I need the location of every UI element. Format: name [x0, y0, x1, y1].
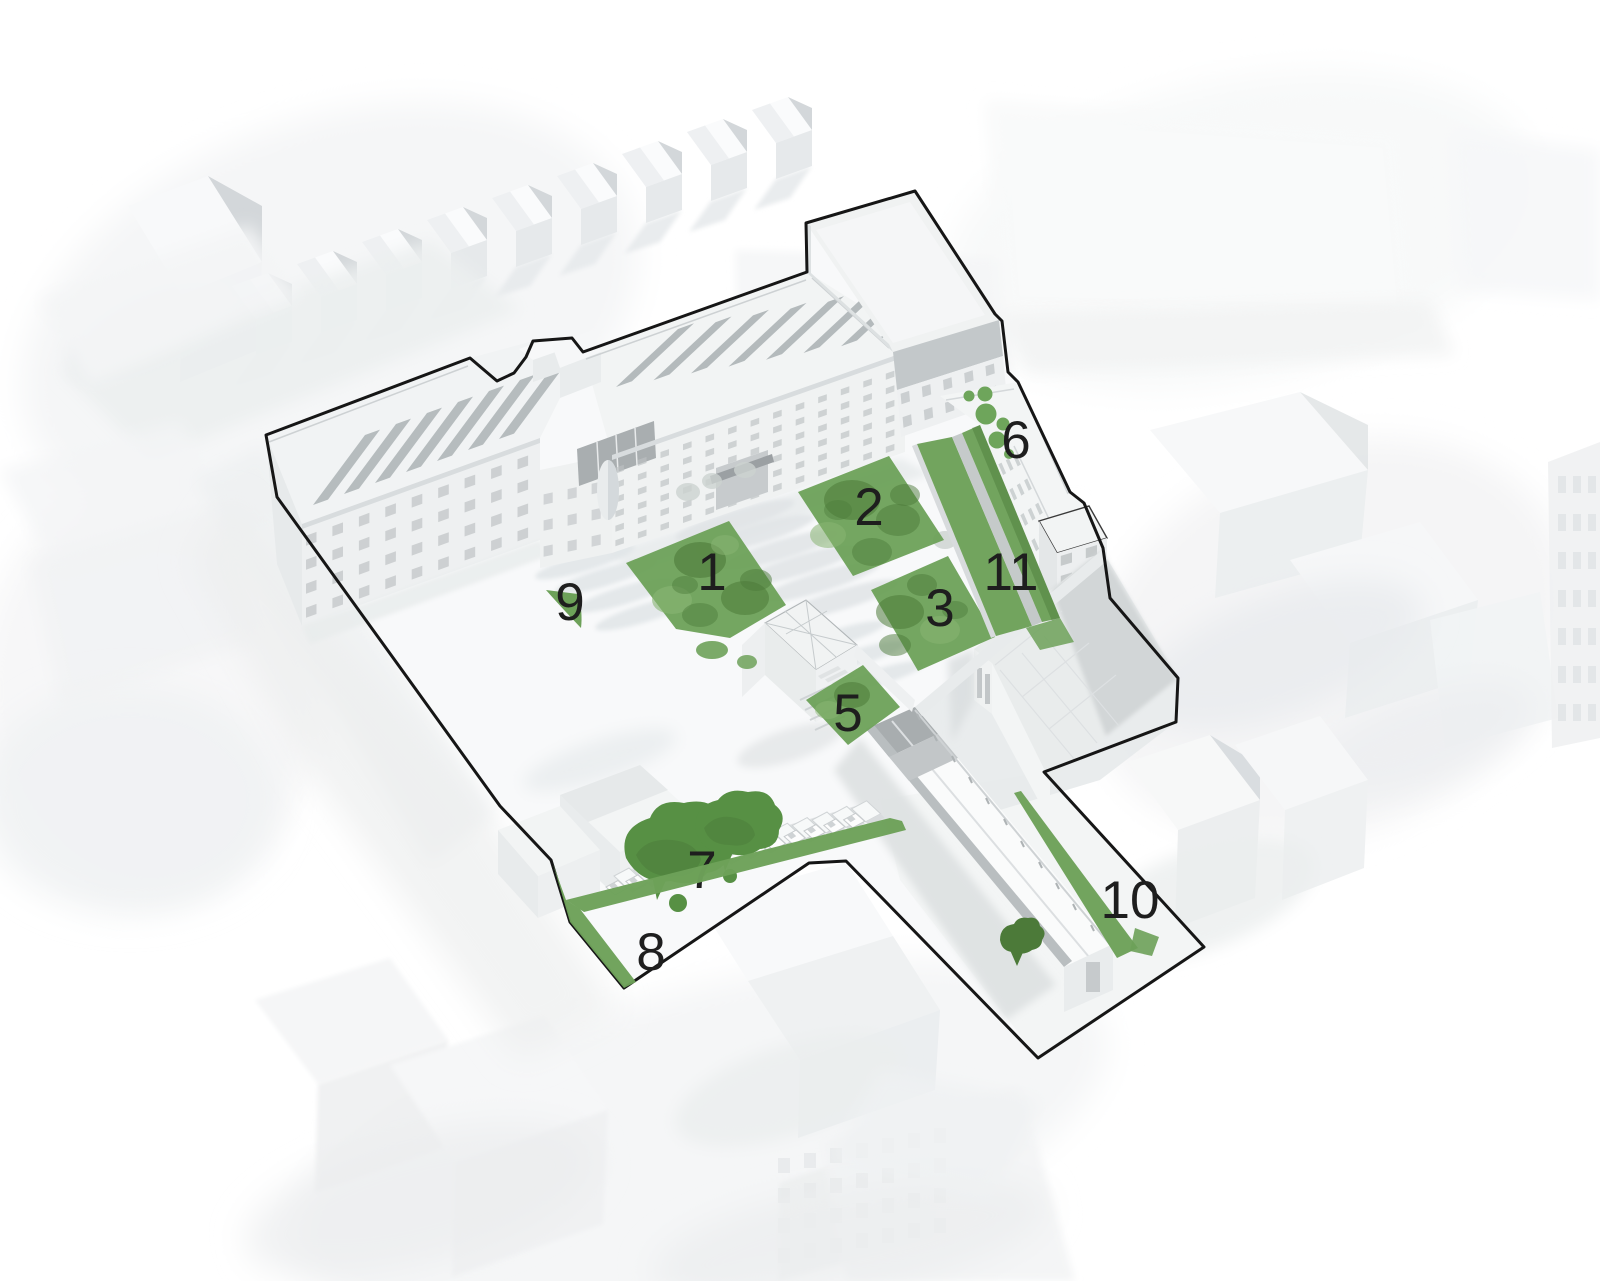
- svg-text:5: 5: [833, 684, 862, 743]
- svg-text:11: 11: [983, 543, 1038, 602]
- svg-text:1: 1: [697, 543, 726, 602]
- svg-text:2: 2: [854, 478, 883, 537]
- svg-text:6: 6: [1001, 411, 1030, 470]
- svg-text:9: 9: [555, 573, 584, 632]
- svg-text:8: 8: [636, 923, 665, 982]
- svg-text:3: 3: [925, 579, 954, 638]
- svg-text:10: 10: [1101, 871, 1160, 930]
